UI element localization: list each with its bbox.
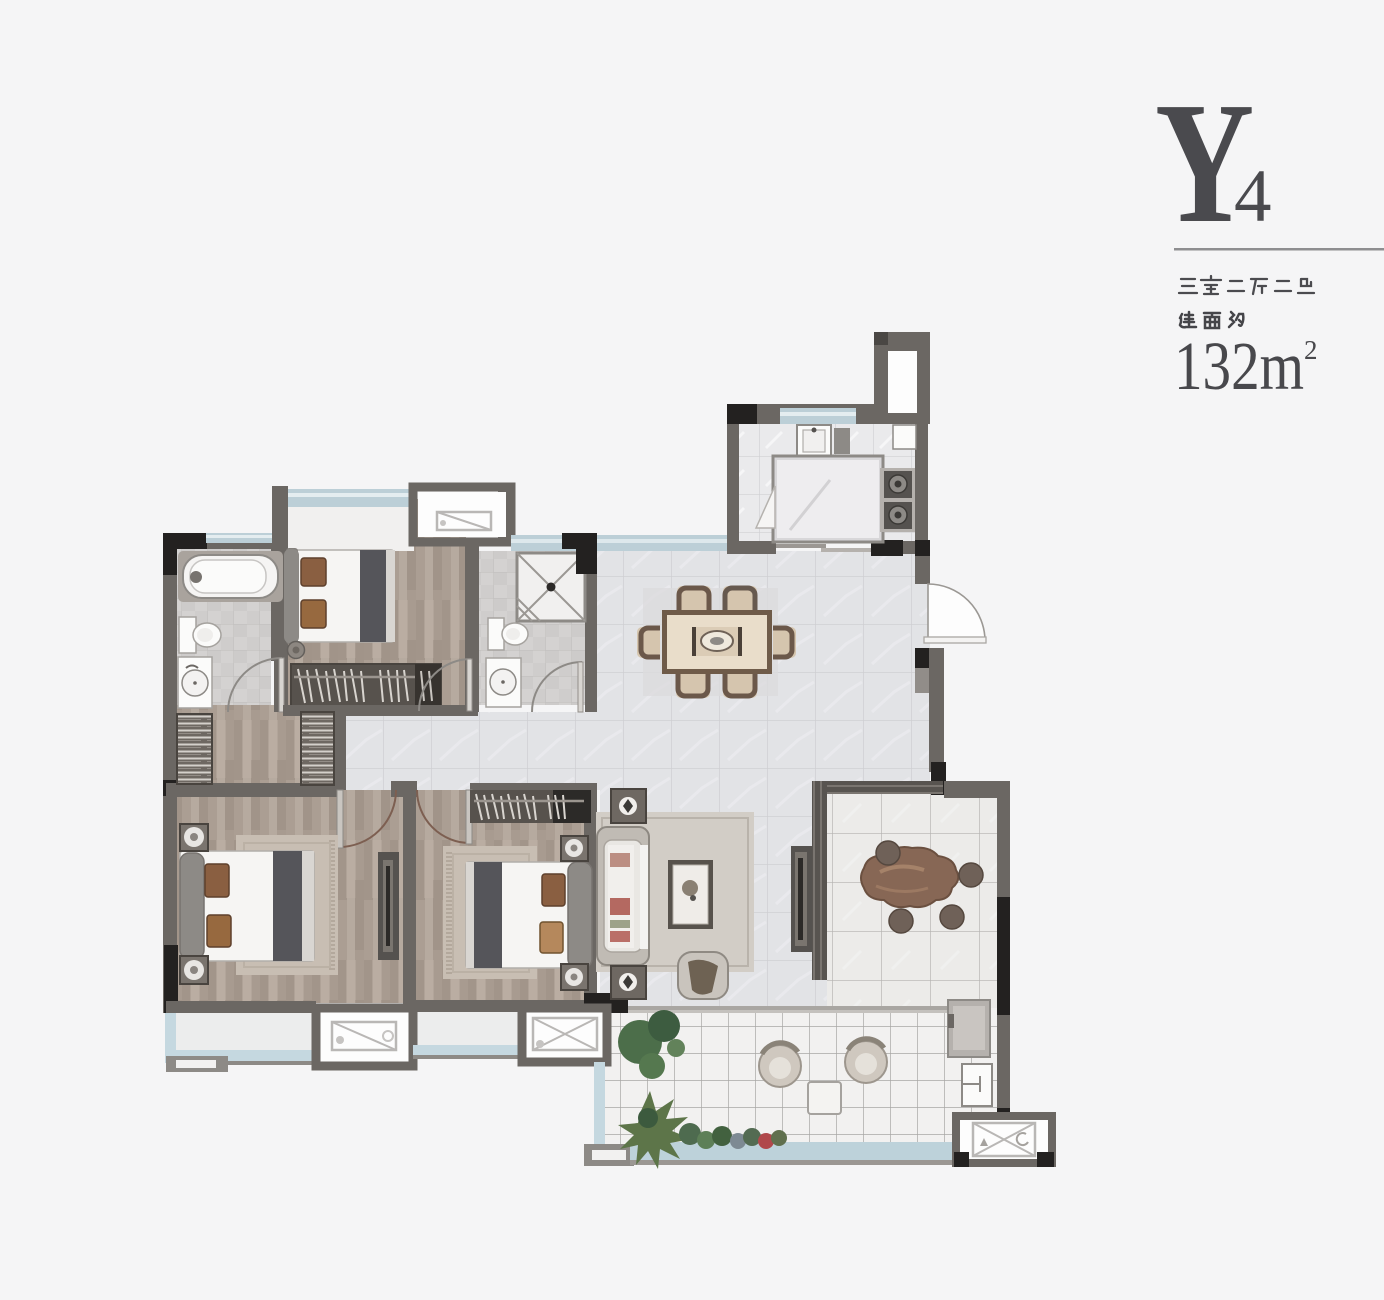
svg-text:2: 2 [1304,335,1318,365]
svg-text:4: 4 [1234,155,1272,238]
svg-text:132m: 132m [1174,328,1304,404]
